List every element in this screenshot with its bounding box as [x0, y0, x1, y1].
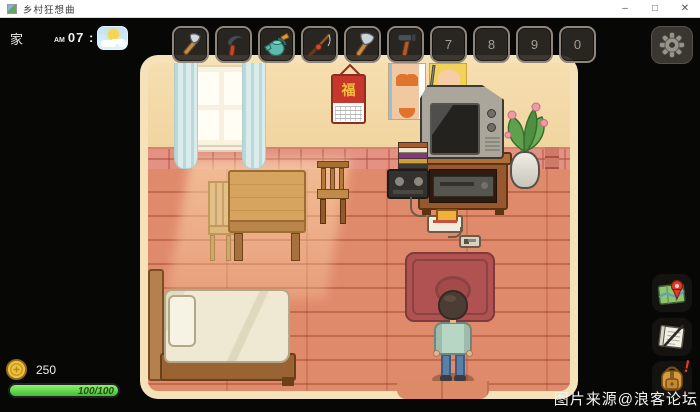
room: 福 [140, 55, 578, 399]
window-panes [190, 72, 248, 140]
flower-plant [500, 101, 550, 157]
backpack-alert-badge: ! [682, 357, 692, 378]
weather-widget [97, 26, 128, 50]
app-window: 乡村狂想曲 – □ ✕ 福 [0, 0, 700, 412]
curtain-left [174, 63, 198, 169]
calendar-grid [335, 106, 362, 121]
close-button[interactable]: ✕ [670, 0, 700, 17]
bed-pillow [168, 295, 196, 347]
cassette-player [387, 169, 429, 199]
poster-bikini [396, 74, 418, 86]
hotbar-slot-8[interactable]: 8 [473, 26, 510, 63]
tv-knob [487, 109, 496, 118]
money-display: 250 [5, 358, 56, 381]
calendar-fu-character: 福 [333, 76, 364, 103]
maximize-button[interactable]: □ [640, 0, 670, 17]
magazine-stack [398, 142, 428, 170]
axe-icon [348, 30, 378, 60]
room-interior[interactable]: 福 [148, 63, 570, 391]
journal-icon [654, 319, 690, 355]
vcr-player [433, 176, 494, 197]
game-viewport[interactable]: 福 [0, 18, 700, 412]
chair-right [317, 161, 349, 225]
watermark: 图片来源@浪客论坛 [554, 388, 698, 409]
curtain-right [242, 63, 266, 169]
bed-leg [282, 377, 294, 386]
hammer-icon [391, 30, 421, 60]
table-apron [228, 220, 306, 233]
hotbar-slot-2[interactable] [215, 26, 252, 63]
slot-number: 0 [574, 37, 581, 52]
hotbar-slot-5[interactable] [344, 26, 381, 63]
slot-number: 9 [531, 37, 538, 52]
health-value: 100/100 [78, 386, 114, 397]
window-controls: – □ ✕ [610, 0, 700, 17]
slot-number: 8 [488, 37, 495, 52]
cassette-cable [410, 197, 426, 217]
hotbar-slot-6[interactable] [387, 26, 424, 63]
hotbar-slot-3[interactable] [258, 26, 295, 63]
tv-stand [418, 152, 508, 210]
health-bar: 100/100 [8, 383, 120, 398]
cloud-icon [101, 40, 117, 47]
titlebar: 乡村狂想曲 – □ ✕ [0, 0, 700, 18]
wooden-table [228, 170, 306, 223]
location-label: 家 [10, 29, 23, 48]
hotbar-slot-0[interactable]: 0 [559, 26, 596, 63]
gear-icon [657, 30, 687, 60]
app-icon [7, 4, 17, 14]
tv-screen [430, 103, 480, 155]
journal-button[interactable] [652, 318, 692, 356]
crt-tv[interactable] [420, 85, 504, 159]
game-controller [459, 235, 481, 248]
flower-vase [510, 151, 540, 189]
doorway[interactable] [397, 381, 489, 399]
hotbar-slot-1[interactable] [172, 26, 209, 63]
minimize-button[interactable]: – [610, 0, 640, 17]
plant-leaves-art [500, 101, 550, 157]
hatchet-icon [176, 30, 206, 60]
map-icon [654, 275, 690, 311]
fishing-rod-icon [305, 30, 335, 60]
slot-number: 7 [445, 37, 452, 52]
tv-knob [487, 123, 496, 132]
coin-icon [5, 358, 28, 381]
money-amount: 250 [36, 363, 56, 377]
window-title: 乡村狂想曲 [23, 2, 76, 16]
sickle-icon [219, 30, 249, 60]
character-head [438, 290, 468, 320]
settings-button[interactable] [651, 26, 693, 64]
sun-icon [108, 29, 119, 40]
stand-shelf [429, 169, 497, 203]
watering-can-icon [262, 30, 292, 60]
hotbar-slot-4[interactable] [301, 26, 338, 63]
player-character [432, 288, 474, 384]
hotbar-slot-9[interactable]: 9 [516, 26, 553, 63]
fu-calendar: 福 [331, 74, 366, 124]
hotbar-slot-7[interactable]: 7 [430, 26, 467, 63]
clock-period: AM [54, 37, 65, 44]
hotbar: 7 8 9 0 [172, 26, 596, 63]
map-button[interactable] [652, 274, 692, 312]
